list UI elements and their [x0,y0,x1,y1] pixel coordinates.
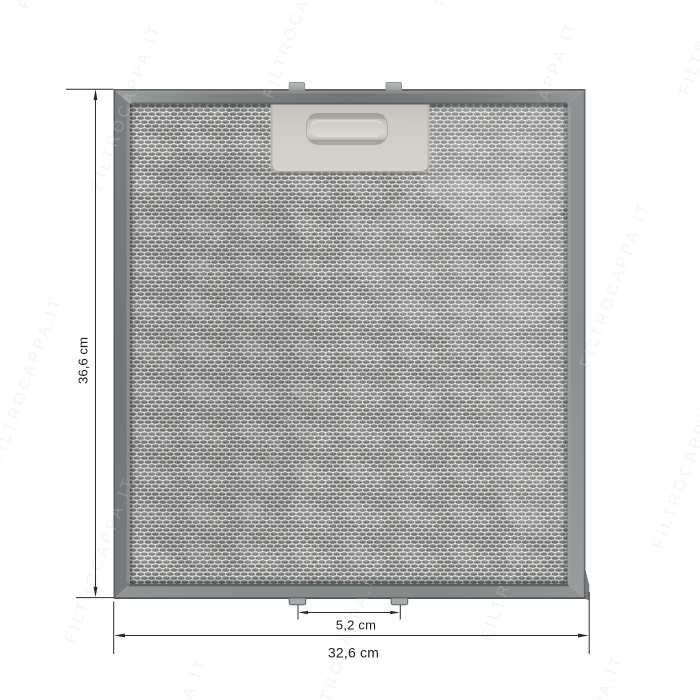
svg-text:32,6 cm: 32,6 cm [328,645,379,661]
svg-text:36,6 cm: 36,6 cm [75,337,90,384]
svg-text:5,2 cm: 5,2 cm [336,618,376,633]
